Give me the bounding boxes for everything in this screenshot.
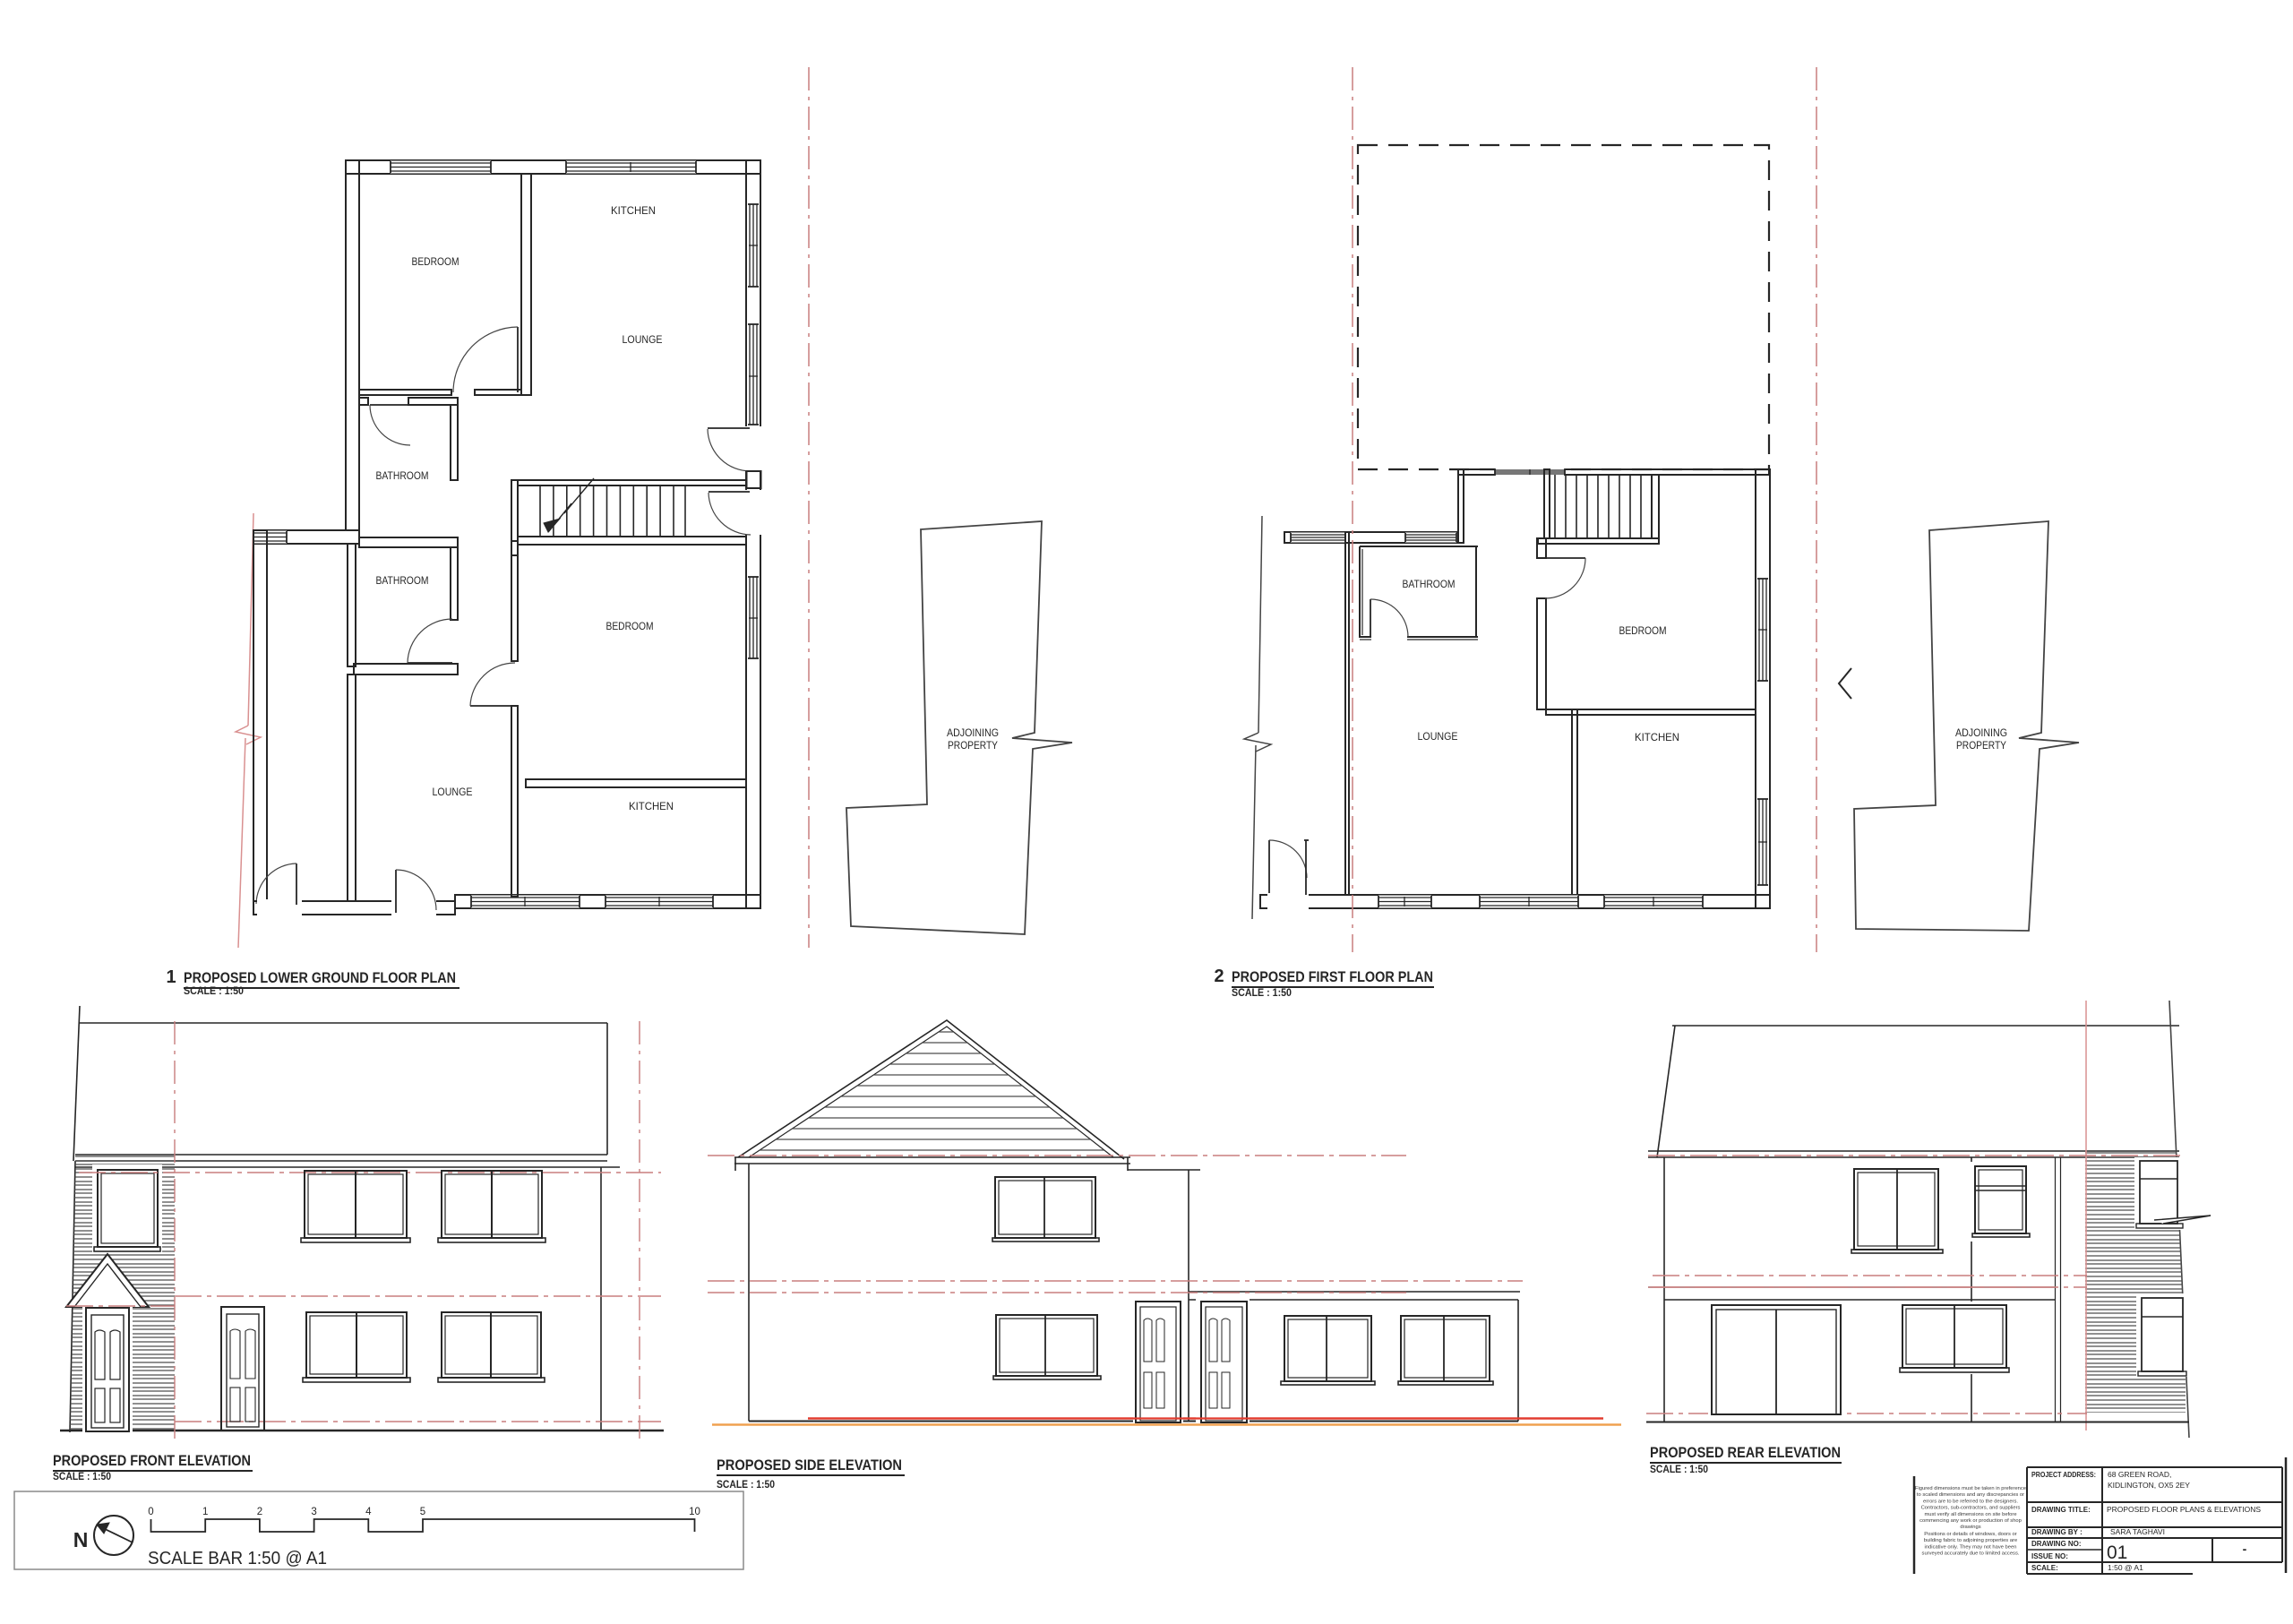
svg-text:PROPOSED FIRST FLOOR PLAN: PROPOSED FIRST FLOOR PLAN [1232,968,1433,985]
svg-text:SCALE : 1:50: SCALE : 1:50 [1232,986,1292,999]
svg-text:must verify all dimensions on: must verify all dimensions on site befor… [1924,1512,2016,1517]
svg-text:BATHROOM: BATHROOM [1403,578,1456,590]
svg-text:BEDROOM: BEDROOM [606,620,654,632]
svg-text:-: - [2243,1542,2247,1556]
svg-text:68 GREEN ROAD,: 68 GREEN ROAD, [2108,1470,2171,1479]
svg-text:LOUNGE: LOUNGE [623,333,663,346]
svg-text:KITCHEN: KITCHEN [629,800,674,812]
svg-text:building fabric to adjoining p: building fabric to adjoining properties … [1924,1538,2017,1543]
svg-text:DRAWING NO:: DRAWING NO: [2031,1540,2082,1548]
svg-text:N: N [73,1528,89,1551]
svg-text:10: 10 [689,1507,700,1517]
svg-text:PROPERTY: PROPERTY [948,739,998,752]
svg-text:SCALE : 1:50: SCALE : 1:50 [717,1478,775,1491]
svg-text:drawings: drawings [1960,1525,1980,1530]
svg-text:4: 4 [365,1507,372,1517]
svg-text:SCALE : 1:50: SCALE : 1:50 [184,984,244,997]
svg-text:BATHROOM: BATHROOM [376,469,429,482]
svg-text:1: 1 [202,1507,208,1517]
svg-text:5: 5 [420,1507,425,1517]
svg-text:ADJOINING: ADJOINING [947,726,999,739]
svg-text:errors are to be referred to t: errors are to be referred to the designe… [1923,1499,2018,1504]
svg-text:ISSUE NO:: ISSUE NO: [2031,1552,2068,1560]
svg-text:PROPERTY: PROPERTY [1956,739,2006,752]
svg-text:Figured dimensions must be tak: Figured dimensions must be taken in pref… [1915,1486,2026,1491]
svg-text:SCALE : 1:50: SCALE : 1:50 [1650,1463,1708,1475]
svg-text:KITCHEN: KITCHEN [611,204,656,217]
svg-text:SARA TAGHAVI: SARA TAGHAVI [2110,1527,2165,1536]
svg-text:2: 2 [1214,967,1224,986]
svg-text:PROPOSED SIDE ELEVATION: PROPOSED SIDE ELEVATION [717,1456,902,1474]
svg-text:SCALE BAR 1:50 @ A1: SCALE BAR 1:50 @ A1 [148,1549,327,1568]
svg-text:0: 0 [148,1507,153,1517]
svg-text:commencing any work or product: commencing any work or production of sho… [1919,1518,2022,1524]
svg-text:surveyed accurately due to lim: surveyed accurately due to limited acces… [1922,1551,2020,1557]
svg-text:Contractors, sub-contractors,: Contractors, sub-contractors, and suppli… [1921,1506,2021,1511]
svg-text:2: 2 [257,1507,262,1517]
svg-text:PROPOSED FLOOR PLANS & ELEVATI: PROPOSED FLOOR PLANS & ELEVATIONS [2107,1505,2261,1514]
svg-text:BATHROOM: BATHROOM [376,574,429,587]
svg-text:3: 3 [311,1507,316,1517]
svg-text:DRAWING BY :: DRAWING BY : [2031,1528,2083,1536]
svg-text:1: 1 [166,967,176,987]
svg-text:1:50 @ A1: 1:50 @ A1 [2108,1563,2143,1572]
svg-text:SCALE:: SCALE: [2031,1564,2058,1572]
svg-text:Positions or details of window: Positions or details of windows, doors o… [1924,1532,2016,1537]
svg-text:LOUNGE: LOUNGE [433,786,473,798]
svg-text:SCALE : 1:50: SCALE : 1:50 [53,1470,111,1482]
svg-text:to scaled dimensions and any d: to scaled dimensions and any discrepanci… [1917,1492,2024,1498]
svg-text:BEDROOM: BEDROOM [412,255,459,268]
svg-text:ADJOINING: ADJOINING [1955,726,2007,739]
svg-text:PROPOSED FRONT ELEVATION: PROPOSED FRONT ELEVATION [53,1452,251,1469]
svg-text:PROJECT ADDRESS:: PROJECT ADDRESS: [2031,1471,2096,1479]
svg-text:KITCHEN: KITCHEN [1635,731,1679,743]
svg-text:indicative only. They may not: indicative only. They may not have been [1925,1544,2017,1550]
svg-text:PROPOSED REAR ELEVATION: PROPOSED REAR ELEVATION [1650,1444,1841,1461]
svg-text:DRAWING TITLE:: DRAWING TITLE: [2031,1506,2091,1514]
svg-text:01: 01 [2107,1542,2127,1563]
svg-text:LOUNGE: LOUNGE [1418,730,1458,743]
svg-text:KIDLINGTON, OX5 2EY: KIDLINGTON, OX5 2EY [2108,1481,2190,1490]
svg-text:BEDROOM: BEDROOM [1619,624,1667,637]
